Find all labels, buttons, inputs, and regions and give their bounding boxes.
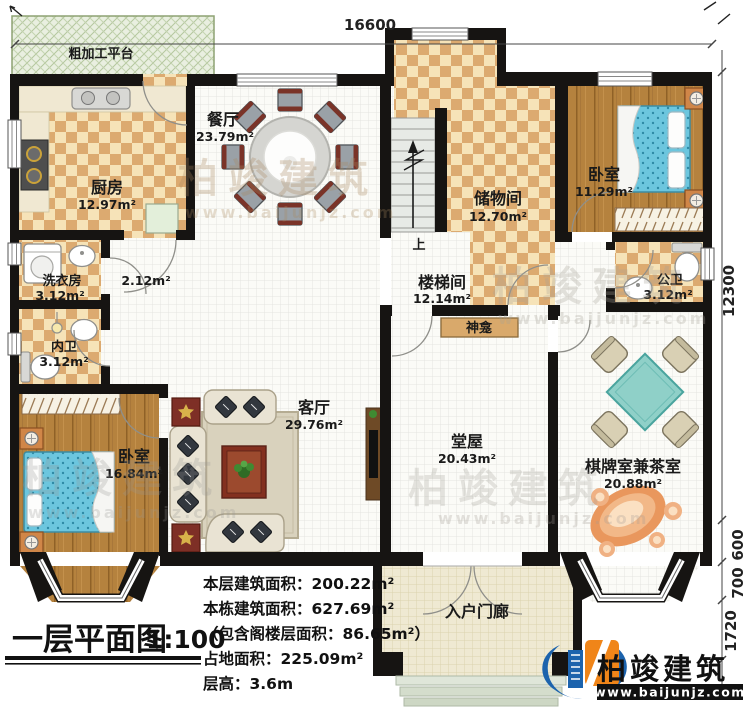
stat-floor-area: 本层建筑面积：200.22m² [203, 574, 394, 593]
window-dining-top [237, 74, 337, 86]
pillow [668, 112, 685, 148]
platform-label: 粗加工平台 [68, 46, 133, 62]
plant-small [369, 410, 377, 418]
tv-cabinet [366, 408, 381, 500]
leader-arrow [10, 6, 22, 16]
wardrobe-tr [615, 208, 708, 231]
dining-area: 23.79m² [196, 129, 254, 144]
stair-hall-area: 12.14m² [413, 291, 471, 306]
tv [369, 430, 378, 478]
storage-label: 储物间 [473, 189, 522, 208]
dim-bay-a: 600 [729, 529, 747, 560]
watermark-url: www.baijunjz.com [438, 509, 649, 528]
stat-floor-height: 层高：3.6m [203, 674, 293, 693]
watermark-url: www.baijunjz.com [185, 203, 396, 222]
window-publicbath-right [701, 248, 714, 280]
storage-area: 12.70m² [469, 209, 527, 224]
window-laundry-left [8, 243, 21, 265]
staircase [391, 118, 435, 232]
watermark-name: 柏竣建筑 [408, 466, 608, 512]
dim-right-height: 12300 [720, 265, 738, 317]
window-bedroom-tr-top [598, 72, 652, 86]
toilet-tank [21, 352, 30, 382]
inner-bath-label: 内卫 [51, 339, 77, 355]
toilet-tank [672, 243, 702, 252]
dim-top-width: 16600 [344, 16, 396, 34]
corridor-area: 2.12m² [121, 273, 170, 288]
washbasin [69, 246, 95, 267]
stat-attic-area: （包含阁楼层面积：86.65m²） [203, 624, 430, 643]
title-underline-thick [5, 656, 201, 660]
bedroom-tr-label: 卧室 [588, 165, 620, 184]
inner-bath-area: 3.12m² [39, 354, 88, 369]
fridge [146, 204, 178, 233]
laundry-label: 洗衣房 [42, 273, 81, 289]
stairs-up-label: 上 [412, 238, 425, 253]
dim-porch-depth: 1720 [722, 610, 740, 652]
lamp-symbol [52, 323, 62, 333]
leader-arrow [704, 2, 730, 24]
watermark-name: 柏竣建筑 [178, 156, 378, 202]
hall-area: 20.43m² [438, 451, 496, 466]
window-storage-top [412, 28, 468, 40]
living-label: 客厅 [298, 398, 330, 417]
dining-label: 餐厅 [206, 110, 239, 129]
kitchen-label: 厨房 [91, 178, 123, 197]
wardrobe-bl [22, 392, 120, 414]
shrine-label: 神龛 [466, 320, 493, 336]
title-block: 一层平面图 1:100 [5, 622, 226, 665]
watermark-url: www.baijunjz.com [498, 309, 709, 328]
chess-area: 20.88m² [604, 476, 662, 491]
title-underline-thin [5, 663, 201, 665]
kitchen-area: 12.97m² [78, 197, 136, 212]
porch-label: 入户门廊 [445, 602, 509, 621]
watermark-name: 柏竣建筑 [22, 456, 222, 502]
kitchen-sink [72, 88, 130, 109]
brand-website: www.baijunjz.com [594, 685, 746, 700]
hall-label: 堂屋 [451, 432, 483, 451]
brand-name: 柏竣建筑 [597, 652, 729, 686]
dim-bay-b: 700 [729, 567, 747, 598]
platform-floor [12, 16, 214, 76]
floor-plan-canvas: 粗加工平台 厨房 12.97m² 餐厅 23.79m² 储物间 12.70m² … [0, 0, 750, 709]
floor-plan-page: 粗加工平台 厨房 12.97m² 餐厅 23.79m² 储物间 12.70m² … [0, 0, 750, 709]
laundry-area: 3.12m² [35, 288, 84, 303]
window-innerbath-left [8, 333, 21, 355]
watermark-name: 柏竣建筑 [492, 264, 692, 310]
sofa-top [204, 390, 276, 424]
bedroom-tr-area: 11.29m² [575, 184, 633, 199]
watermark-url: www.baijunjz.com [28, 503, 239, 522]
porch-steps [396, 676, 566, 706]
living-area: 29.76m² [285, 417, 343, 432]
stat-building-area: 本栋建筑面积：627.69m² [203, 599, 394, 618]
stair-hall-label: 楼梯间 [418, 273, 466, 292]
plan-title: 一层平面图 [12, 622, 167, 658]
stat-footprint-area: 占地面积：225.09m² [203, 649, 363, 668]
pillow [668, 152, 685, 188]
window-kitchen-left [8, 120, 21, 168]
